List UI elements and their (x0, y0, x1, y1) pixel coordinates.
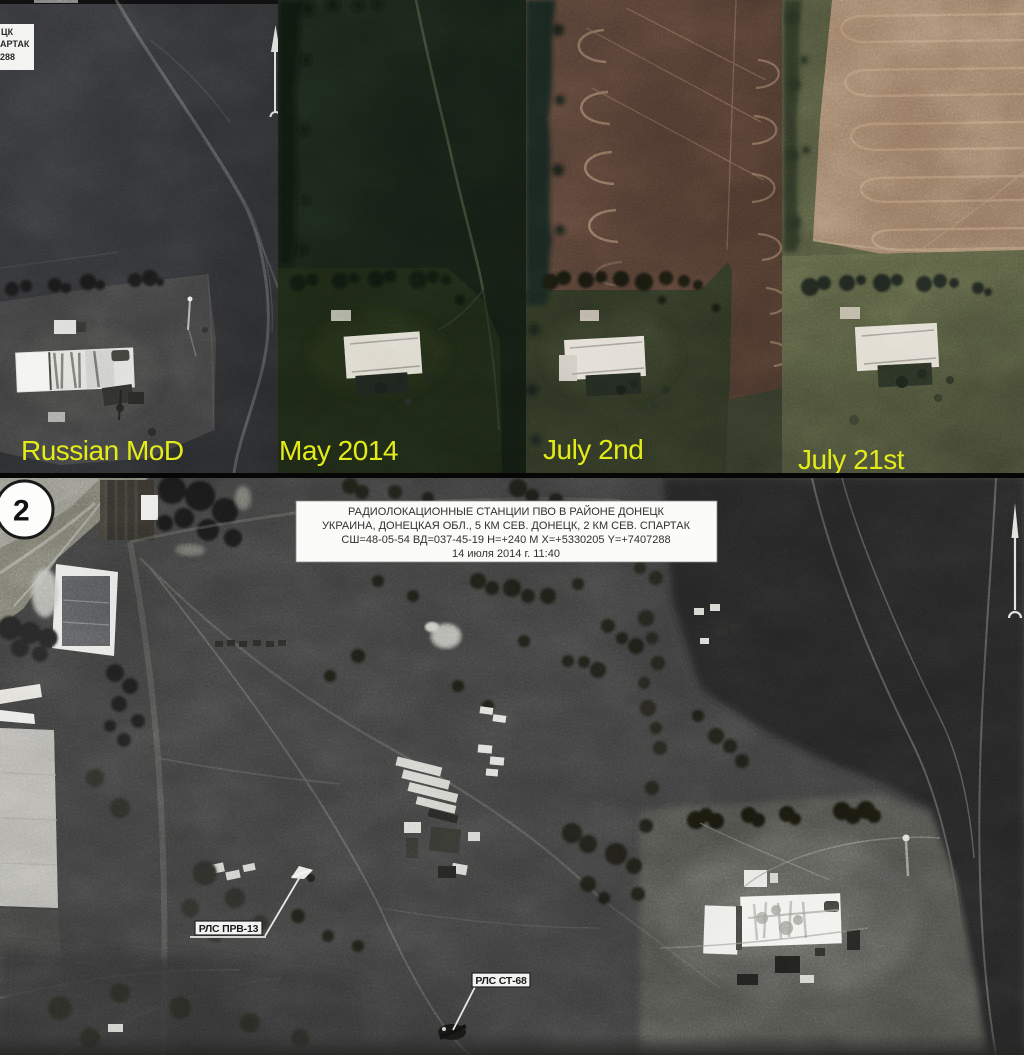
svg-text:СШ=48-05-54 ВД=037-45-19 Н=+24: СШ=48-05-54 ВД=037-45-19 Н=+240 М Х=+533… (341, 534, 670, 546)
svg-text:РАДИОЛОКАЦИОННЫЕ СТАНЦИИ ПВО В: РАДИОЛОКАЦИОННЫЕ СТАНЦИИ ПВО В РАЙОНЕ ДО… (348, 505, 664, 518)
svg-text:14 июля 2014 г. 11:40: 14 июля 2014 г. 11:40 (452, 548, 560, 560)
svg-text:РЛС СТ-68: РЛС СТ-68 (475, 975, 527, 987)
svg-text:May 2014: May 2014 (279, 435, 398, 466)
svg-text:July 21st: July 21st (798, 444, 905, 473)
svg-text:July 2nd: July 2nd (543, 434, 643, 465)
svg-text:РЛС ПРВ-13: РЛС ПРВ-13 (199, 923, 259, 935)
svg-text:2: 2 (13, 495, 30, 528)
svg-text:ЦК: ЦК (1, 27, 14, 37)
svg-text:АРТАК: АРТАК (0, 39, 30, 49)
svg-text:288: 288 (0, 52, 15, 62)
svg-text:Russian MoD: Russian MoD (21, 435, 184, 466)
svg-text:УКРАИНА, ДОНЕЦКАЯ ОБЛ., 5 КМ С: УКРАИНА, ДОНЕЦКАЯ ОБЛ., 5 КМ СЕВ. ДОНЕЦК… (322, 520, 691, 532)
